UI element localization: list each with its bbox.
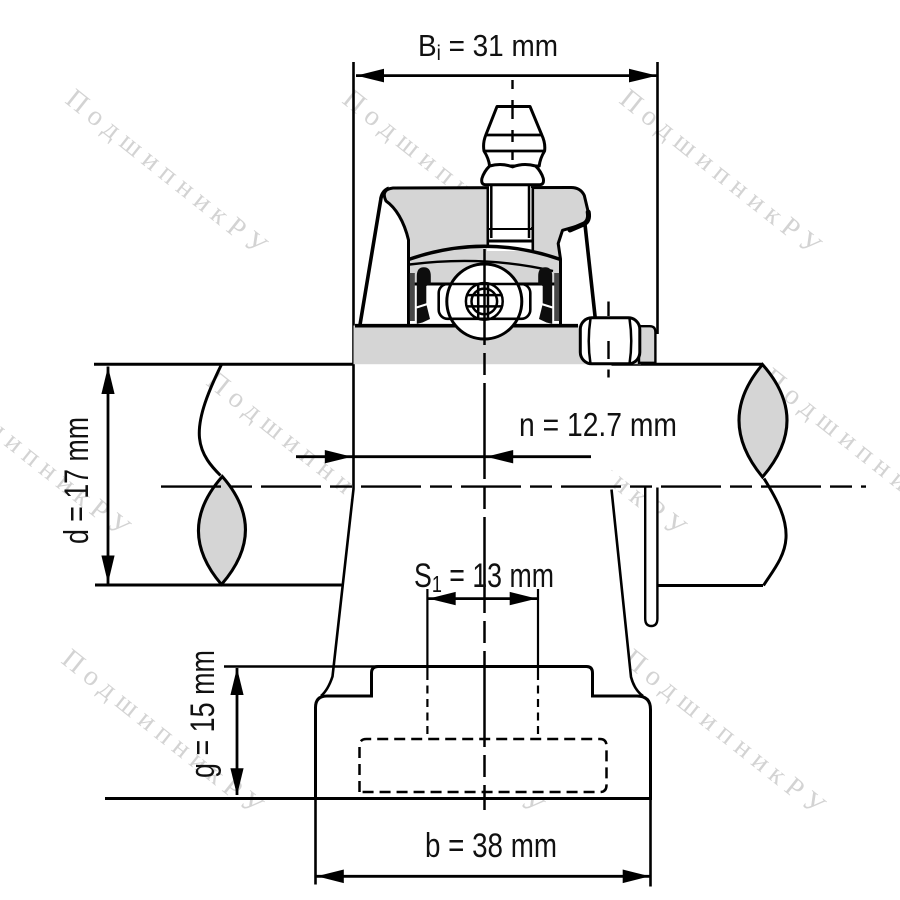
svg-text:b = 38 mm: b = 38 mm (425, 827, 557, 865)
svg-text:d = 17 mm: d = 17 mm (58, 417, 96, 544)
svg-text:n = 12.7 mm: n = 12.7 mm (519, 406, 677, 443)
svg-text:g = 15 mm: g = 15 mm (184, 650, 222, 778)
